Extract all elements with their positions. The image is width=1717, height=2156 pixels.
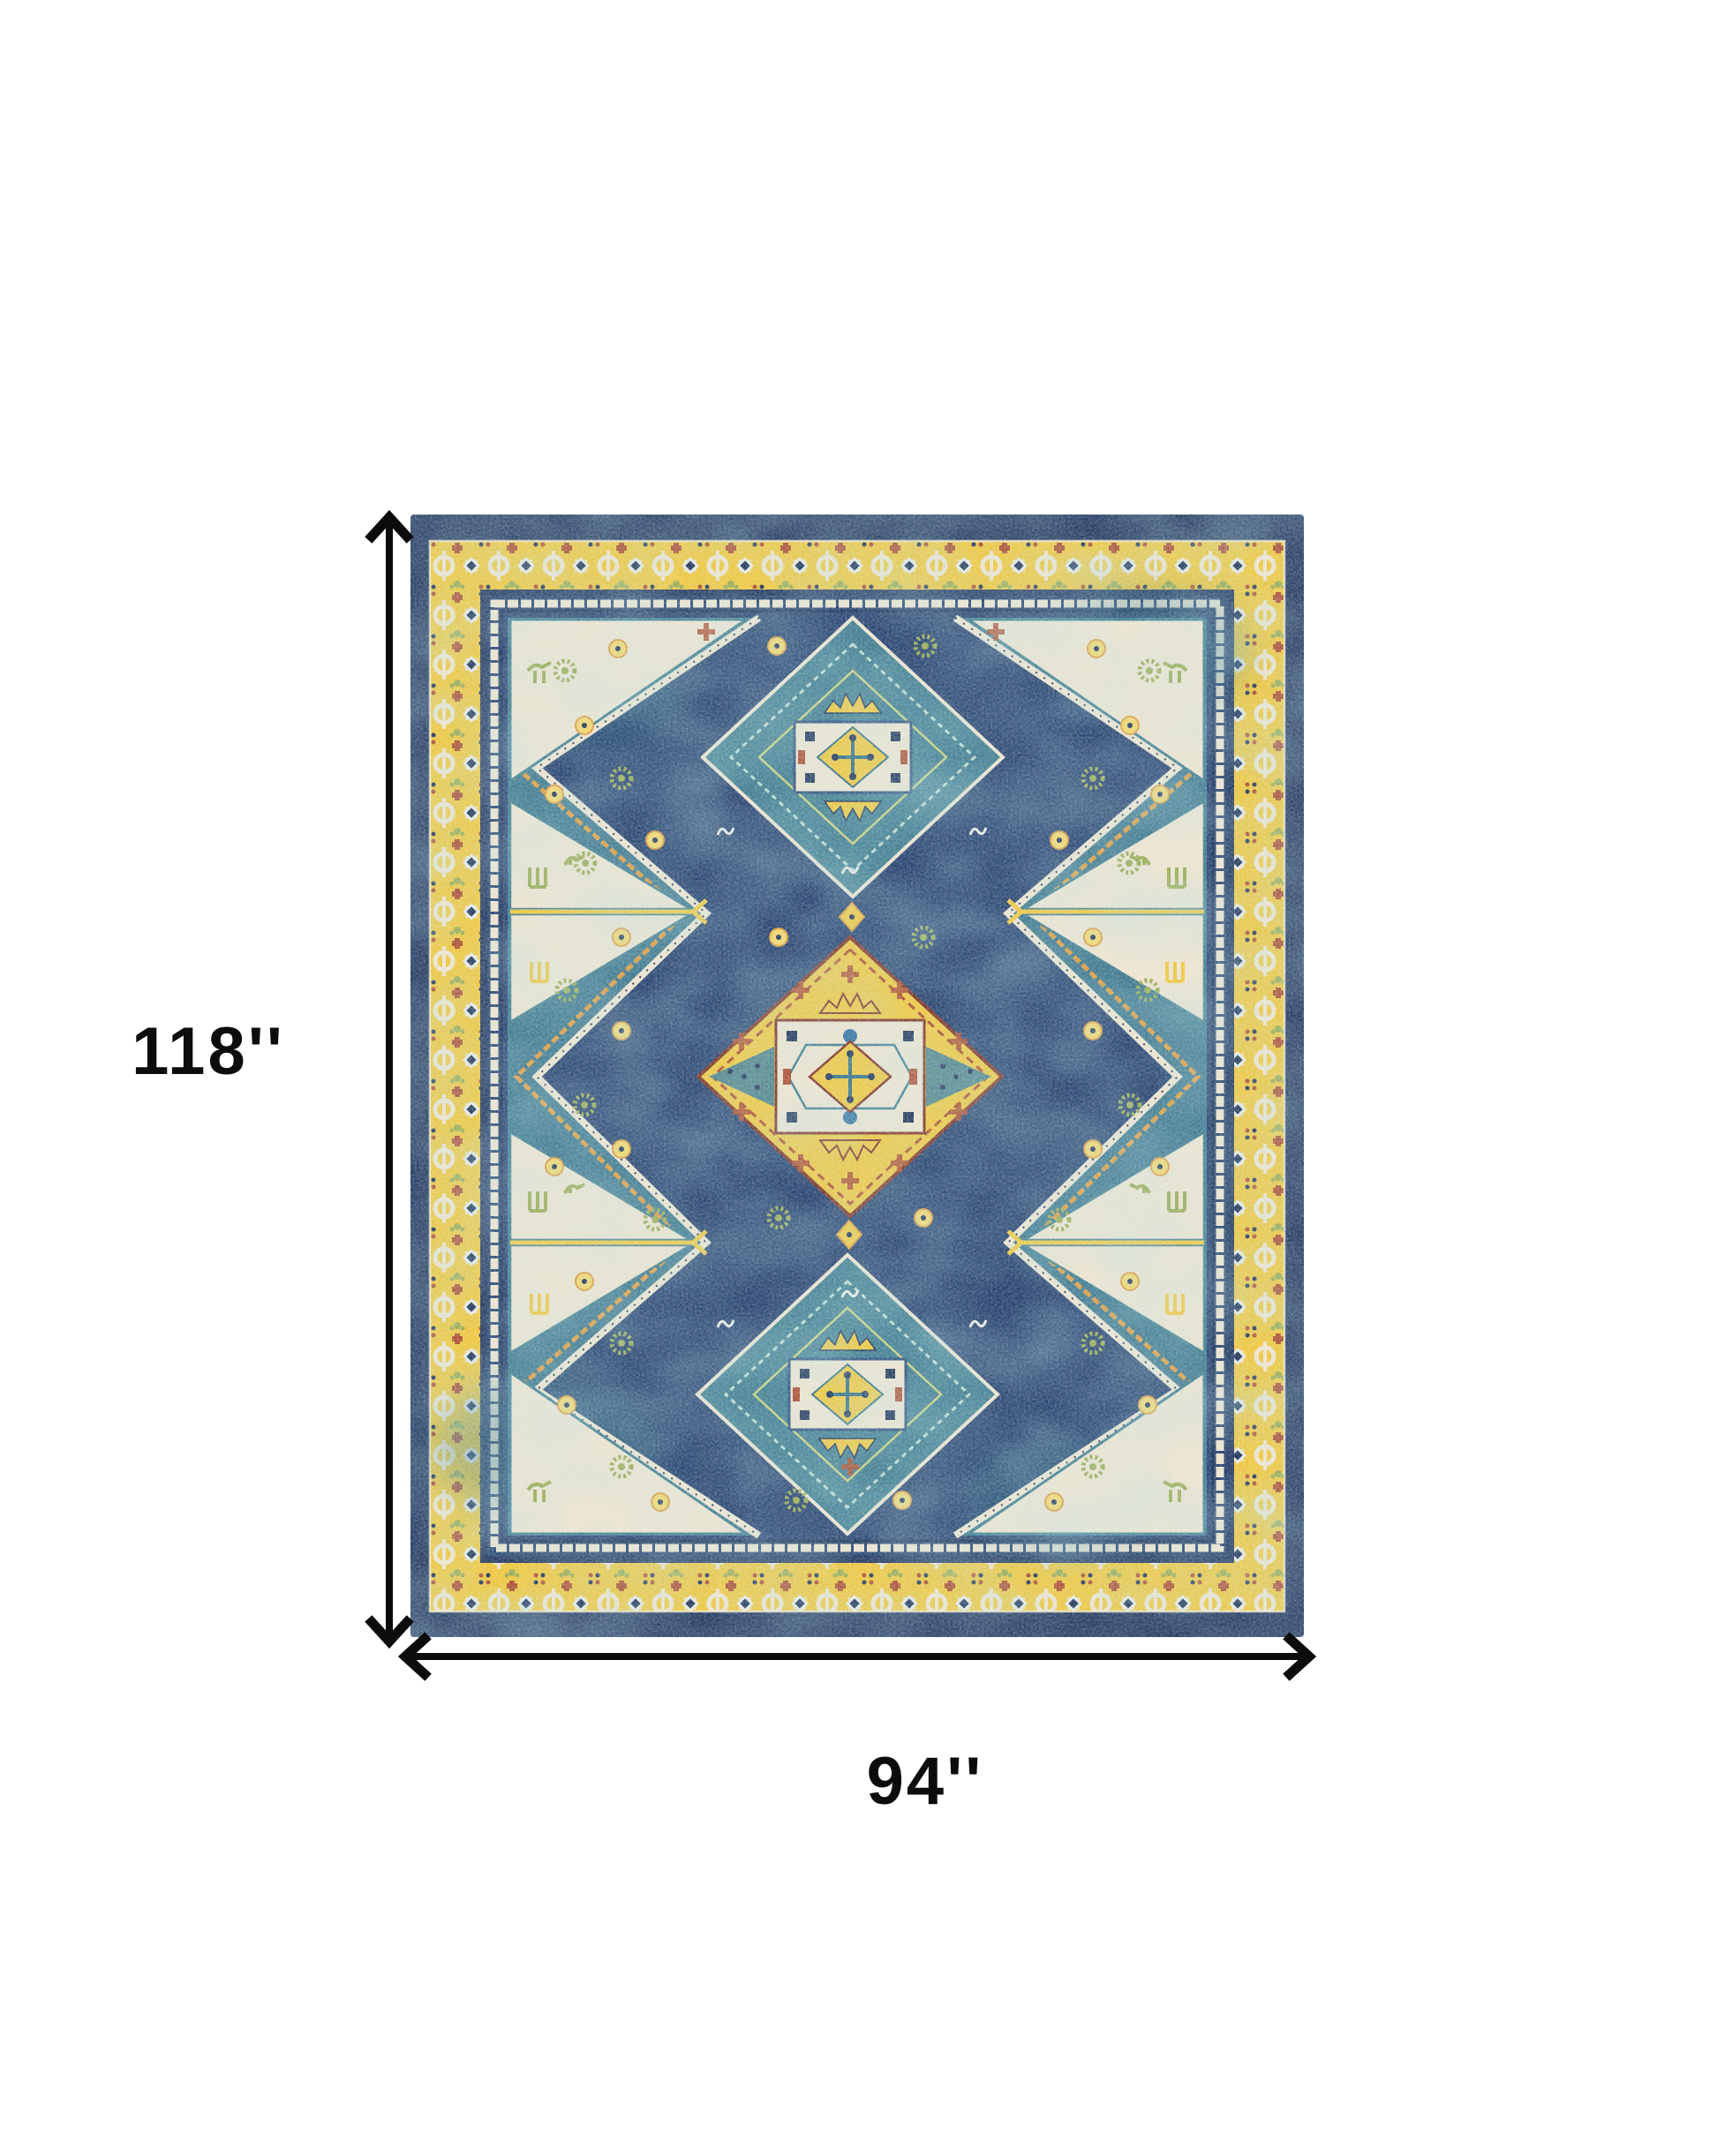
rug-image	[410, 515, 1304, 1637]
rug-texture-speckle	[410, 515, 1304, 1637]
width-dimension-arrow	[405, 1639, 1309, 1674]
product-dimension-figure: 118'' 94''	[0, 0, 1717, 2156]
height-dimension-label: 118''	[76, 1015, 341, 1089]
width-dimension-label: 94''	[793, 1745, 1058, 1819]
height-dimension-arrow	[372, 517, 407, 1641]
